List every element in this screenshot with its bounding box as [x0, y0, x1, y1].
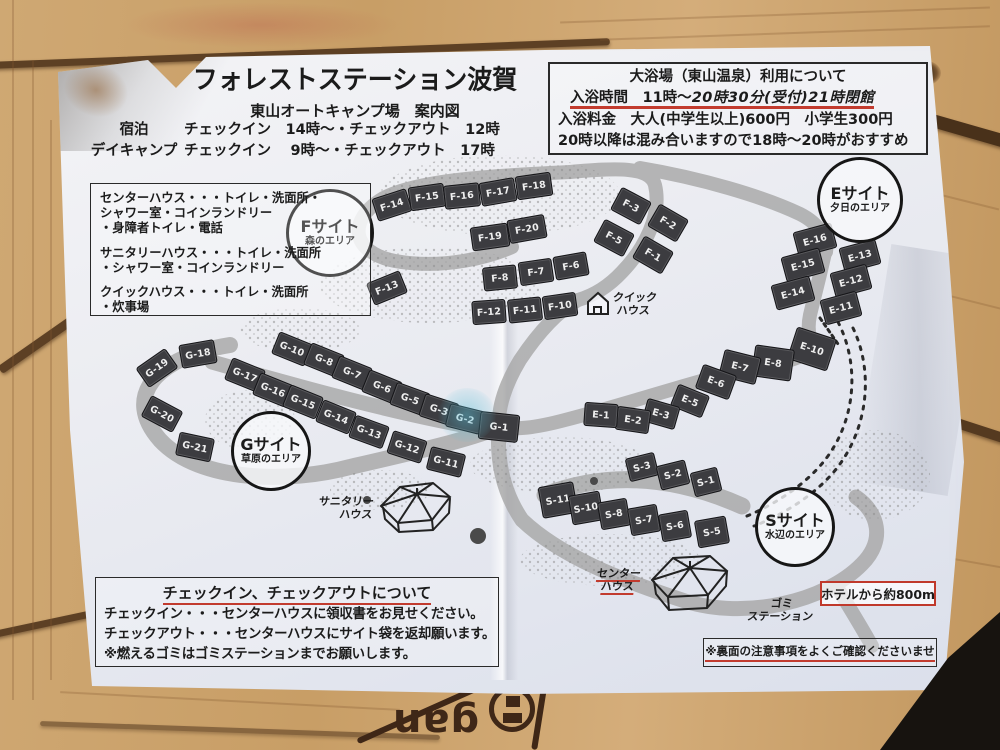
water-smudge [438, 388, 496, 442]
legend-item: サニタリーハウス・・・トイレ・洗面所 ・シャワー室・コインランドリー [100, 246, 361, 276]
checkin-info-title-text: チェックイン、チェックアウトについて [163, 584, 432, 605]
wood-grain [600, 25, 990, 41]
area-badge-name: Sサイト [765, 513, 825, 530]
bath-hours-printed: 入浴時間 11時〜 [570, 90, 692, 106]
wood-grain [12, 0, 14, 700]
area-badge-e: Eサイト夕日のエリア [817, 157, 903, 243]
bath-info-title: 大浴場（東山温泉）利用について [558, 67, 918, 88]
back-note-text: ※裏面の注意事項をよくご確認くださいませ [705, 643, 934, 662]
page-title: フォレストステーション波賀 [180, 59, 530, 96]
center-house-label: センター ハウス [594, 568, 641, 593]
title-block: フォレストステーション波賀 東山オートキャンプ場 案内図 [180, 60, 530, 121]
photo-of-campground-map: gan [0, 0, 1000, 750]
bath-fee-line: 入浴料金 大人(中学生以上)600円 小学生300円 [558, 110, 918, 131]
gomi-station-label: ゴミ ステーション [746, 598, 815, 623]
checkin-schedule: 宿泊 チェックイン 14時〜・チェックアウト 12時 デイキャンプ チェックイン… [84, 120, 544, 162]
bath-info-box: 大浴場（東山温泉）利用について 入浴時間 11時〜20時30分(受付)21時閉館… [548, 62, 928, 155]
bath-hours-line: 入浴時間 11時〜20時30分(受付)21時閉館 [558, 88, 918, 109]
bath-hours-handwritten: 20時30分(受付)21時閉館 [692, 90, 875, 106]
hotel-distance-box: ホテルから約800m [820, 581, 936, 606]
facility-legend-box: センターハウス・・・トイレ・洗面所・ シャワー室・コインランドリー ・身障者トイ… [90, 183, 371, 316]
checkin-info-line: チェックアウト・・・センターハウスにサイト袋を返却願います。 [104, 625, 490, 645]
schedule-row: デイキャンプ チェックイン 9時〜・チェックアウト 17時 [84, 141, 544, 162]
area-badge-subtitle: 夕日のエリア [830, 203, 890, 214]
checkin-info-title: チェックイン、チェックアウトについて [104, 582, 490, 605]
area-badge-name: Gサイト [240, 437, 301, 454]
schedule-text: チェックイン 14時〜・チェックアウト 12時 [184, 120, 500, 141]
area-badge-s: Sサイト水辺のエリア [755, 487, 835, 567]
area-badge-subtitle: 水辺のエリア [765, 530, 825, 541]
area-badge-g: Gサイト草原のエリア [231, 411, 311, 491]
paper-map: F-14F-15F-16F-17F-18F-19F-20F-3F-2F-5F-1… [0, 0, 1000, 750]
bath-hours-underlined: 入浴時間 11時〜20時30分(受付)21時閉館 [570, 90, 874, 109]
wood-color-streak [120, 2, 400, 48]
area-badge-subtitle: 草原のエリア [241, 454, 301, 465]
checkin-info-box: チェックイン、チェックアウトについて チェックイン・・・センターハウスに領収書を… [95, 577, 499, 667]
schedule-text: チェックイン 9時〜・チェックアウト 17時 [184, 141, 495, 162]
checkin-info-line: チェックイン・・・センターハウスに領収書をお見せください。 [104, 605, 490, 625]
schedule-label: デイキャンプ [84, 141, 184, 162]
area-badge-name: Eサイト [831, 186, 890, 203]
legend-item: センターハウス・・・トイレ・洗面所・ シャワー室・コインランドリー ・身障者トイ… [100, 191, 361, 237]
wood-grain [560, 6, 990, 23]
page-subtitle: 東山オートキャンプ場 案内図 [180, 100, 530, 121]
bath-note-line: 20時以降は混み合いますので18時〜20時がおすすめ [558, 131, 918, 152]
back-note-box: ※裏面の注意事項をよくご確認くださいませ [703, 638, 937, 667]
schedule-label: 宿泊 [84, 120, 184, 141]
quick-house-label: クイック ハウス [610, 292, 657, 317]
wood-grain [60, 691, 400, 711]
legend-item: クイックハウス・・・トイレ・洗面所 ・炊事場 [100, 285, 361, 315]
sanitary-house-label: サニタリー ハウス [316, 496, 374, 521]
wood-grain [32, 60, 34, 700]
center-house-label-text: センター ハウス [596, 567, 642, 595]
table-logo-text: gan [392, 700, 479, 746]
schedule-row: 宿泊 チェックイン 14時〜・チェックアウト 12時 [84, 120, 544, 141]
wood-grain [50, 120, 52, 680]
table-logo-line [531, 688, 547, 750]
checkin-info-line: ※燃えるゴミはゴミステーションまでお願いします。 [104, 645, 490, 665]
